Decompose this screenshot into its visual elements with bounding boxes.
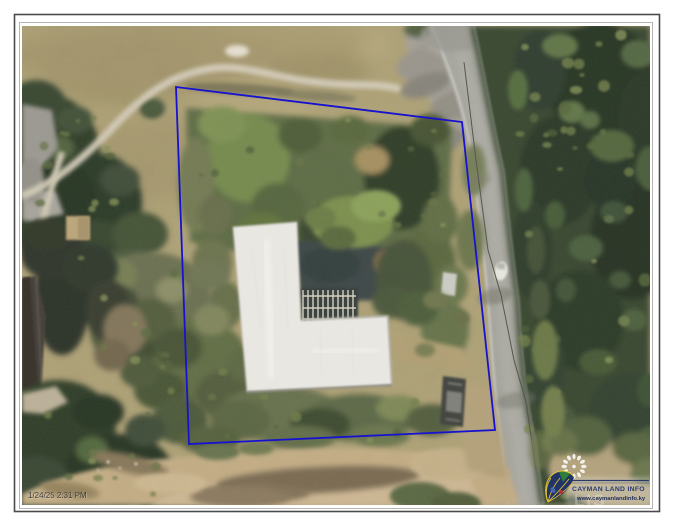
svg-text:www.caymanlandinfo.ky: www.caymanlandinfo.ky: [576, 496, 646, 502]
svg-text:CAYMAN LAND INFO: CAYMAN LAND INFO: [572, 486, 645, 493]
svg-text:1/24/25 2:31 PM: 1/24/25 2:31 PM: [28, 491, 87, 500]
